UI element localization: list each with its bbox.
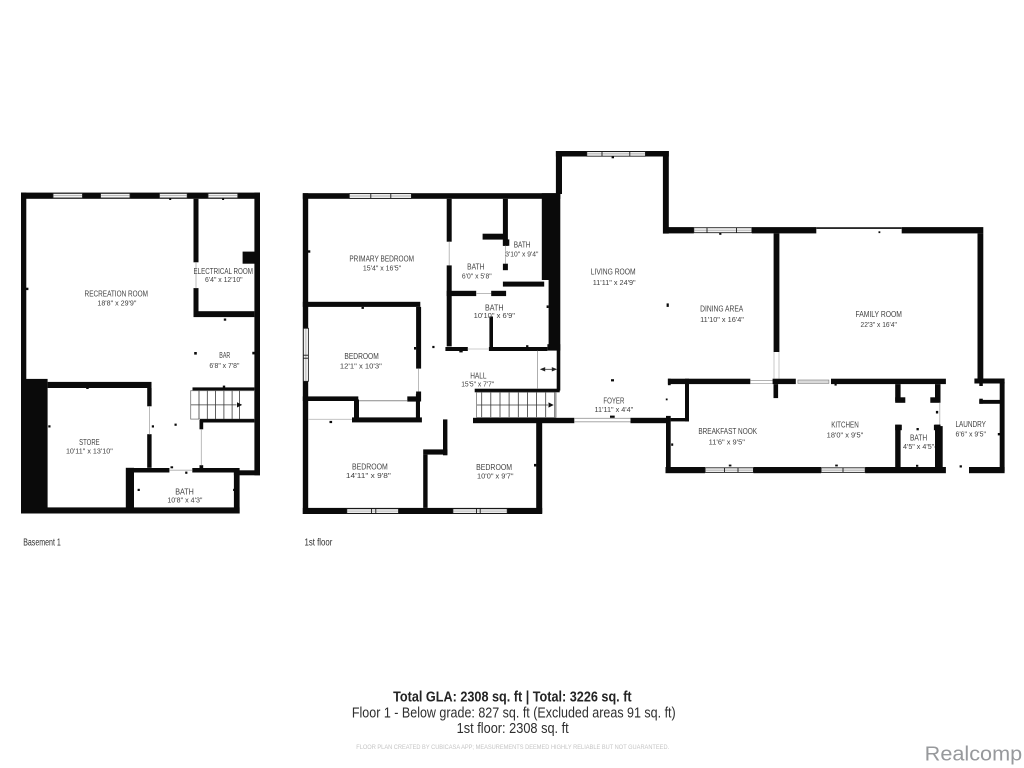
svg-text:22'3" x 16'4": 22'3" x 16'4" (861, 320, 898, 329)
svg-text:FLOOR PLAN CREATED BY CUBICASA: FLOOR PLAN CREATED BY CUBICASA APP; MEAS… (356, 744, 669, 751)
svg-text:PRIMARY BEDROOM: PRIMARY BEDROOM (349, 255, 414, 264)
svg-text:14'11" x 9'8": 14'11" x 9'8" (346, 471, 391, 480)
svg-text:DINING AREA: DINING AREA (700, 305, 744, 314)
svg-text:KITCHEN: KITCHEN (831, 420, 859, 429)
svg-text:LAUNDRY: LAUNDRY (955, 420, 986, 429)
svg-text:Basement 1: Basement 1 (23, 537, 61, 548)
svg-text:10'10" x 6'9": 10'10" x 6'9" (474, 311, 516, 320)
svg-text:11'6" x 9'5": 11'6" x 9'5" (709, 438, 746, 447)
svg-text:BATH: BATH (514, 240, 531, 249)
svg-text:6'6" x 9'5": 6'6" x 9'5" (955, 429, 986, 438)
svg-text:11'11" x 4'4": 11'11" x 4'4" (595, 405, 634, 414)
svg-text:FOYER: FOYER (603, 396, 624, 405)
svg-text:6'0" x 5'8": 6'0" x 5'8" (462, 271, 492, 280)
svg-text:12'1" x 10'3": 12'1" x 10'3" (340, 361, 382, 370)
svg-text:15'5" x 7'7": 15'5" x 7'7" (461, 379, 494, 388)
svg-text:10'0" x 9'7": 10'0" x 9'7" (477, 472, 514, 481)
svg-text:RECREATION ROOM: RECREATION ROOM (85, 290, 149, 299)
svg-text:BREAKFAST NOOK: BREAKFAST NOOK (698, 427, 757, 436)
svg-text:18'0" x 9'5": 18'0" x 9'5" (827, 431, 864, 440)
svg-text:4'5" x 4'5": 4'5" x 4'5" (903, 442, 935, 451)
svg-text:Total GLA: 2308 sq. ft | Total: Total GLA: 2308 sq. ft | Total: 3226 sq.… (393, 689, 632, 705)
svg-text:Realcomp: Realcomp (925, 743, 1023, 766)
svg-text:6'8" x 7'8": 6'8" x 7'8" (209, 361, 239, 370)
svg-text:11'10" x 16'4": 11'10" x 16'4" (700, 315, 744, 324)
svg-text:3'10" x 9'4": 3'10" x 9'4" (505, 250, 539, 259)
svg-text:STORE: STORE (79, 438, 100, 447)
svg-text:10'8" x 4'3": 10'8" x 4'3" (167, 495, 203, 504)
svg-text:Floor 1 - Below grade: 827 sq.: Floor 1 - Below grade: 827 sq. ft (Exclu… (352, 705, 676, 721)
svg-text:1st floor: 1st floor (305, 537, 333, 548)
svg-text:BATH: BATH (467, 262, 484, 271)
svg-text:18'8" x 29'9": 18'8" x 29'9" (97, 299, 136, 308)
svg-text:15'4" x 16'5": 15'4" x 16'5" (363, 264, 402, 273)
svg-text:LIVING ROOM: LIVING ROOM (591, 268, 636, 277)
svg-text:10'11" x 13'10": 10'11" x 13'10" (66, 447, 113, 456)
svg-text:BAR: BAR (219, 351, 230, 360)
svg-text:11'11" x 24'9": 11'11" x 24'9" (593, 278, 636, 287)
svg-text:1st floor: 2308 sq. ft: 1st floor: 2308 sq. ft (457, 721, 569, 737)
svg-text:FAMILY ROOM: FAMILY ROOM (855, 310, 902, 319)
svg-text:6'4" x 12'10": 6'4" x 12'10" (205, 275, 243, 284)
svg-text:BEDROOM: BEDROOM (344, 352, 378, 361)
